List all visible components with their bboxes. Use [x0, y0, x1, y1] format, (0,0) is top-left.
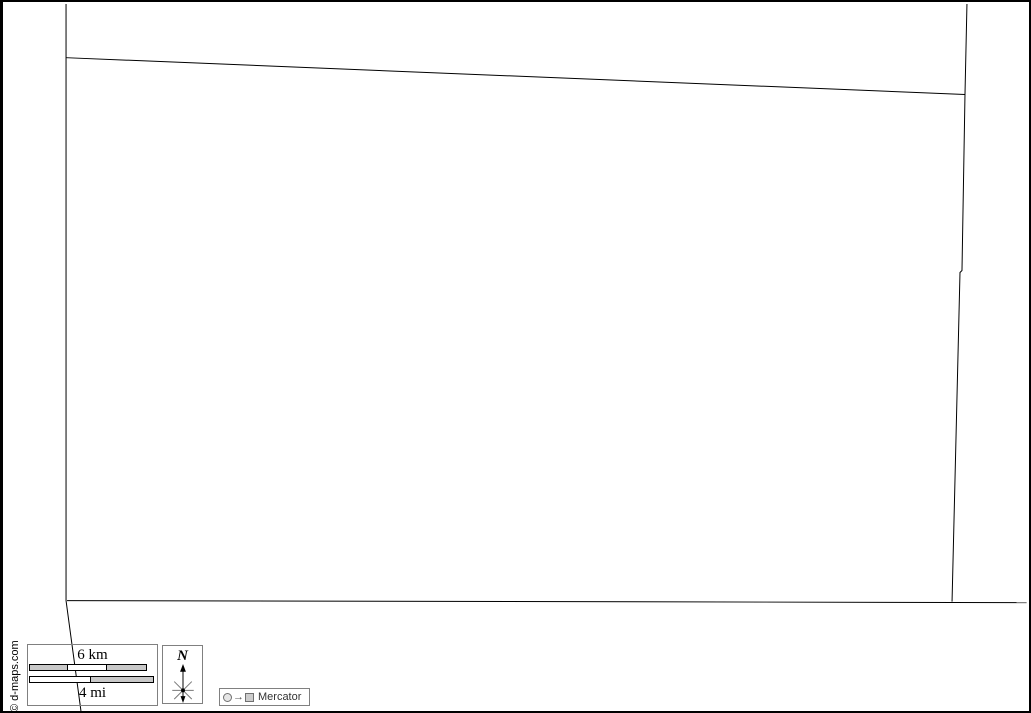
scale-segment: [68, 665, 106, 670]
projection-badge: → Mercator: [219, 688, 310, 706]
scale-segment: [91, 677, 153, 682]
scale-mi-bar: [29, 676, 154, 683]
copyright-text: © d-maps.com: [9, 640, 21, 712]
map-boundary-top: [66, 58, 965, 95]
scale-mi-label: 4 mi: [28, 686, 157, 701]
map-boundary-left: [66, 4, 81, 711]
scale-km-bar: [29, 664, 147, 671]
map-canvas: [3, 2, 1029, 711]
map-boundary-bottom: [67, 601, 1027, 603]
projection-label: Mercator: [258, 692, 301, 703]
scale-bar-box: 6 km 4 mi: [27, 644, 158, 706]
scale-segment: [30, 665, 68, 670]
sphere-icon: [223, 693, 232, 702]
scale-segment: [30, 677, 91, 682]
north-label: N: [177, 648, 188, 664]
flat-map-icon: [245, 693, 254, 702]
map-page: 6 km 4 mi N → Mercator © d-maps.com: [0, 0, 1031, 713]
compass-star-icon: [170, 664, 196, 703]
scale-segment: [107, 665, 146, 670]
scale-km-label: 6 km: [28, 648, 157, 663]
arrow-right-icon: →: [233, 692, 244, 703]
north-arrow-box: N: [162, 645, 203, 704]
